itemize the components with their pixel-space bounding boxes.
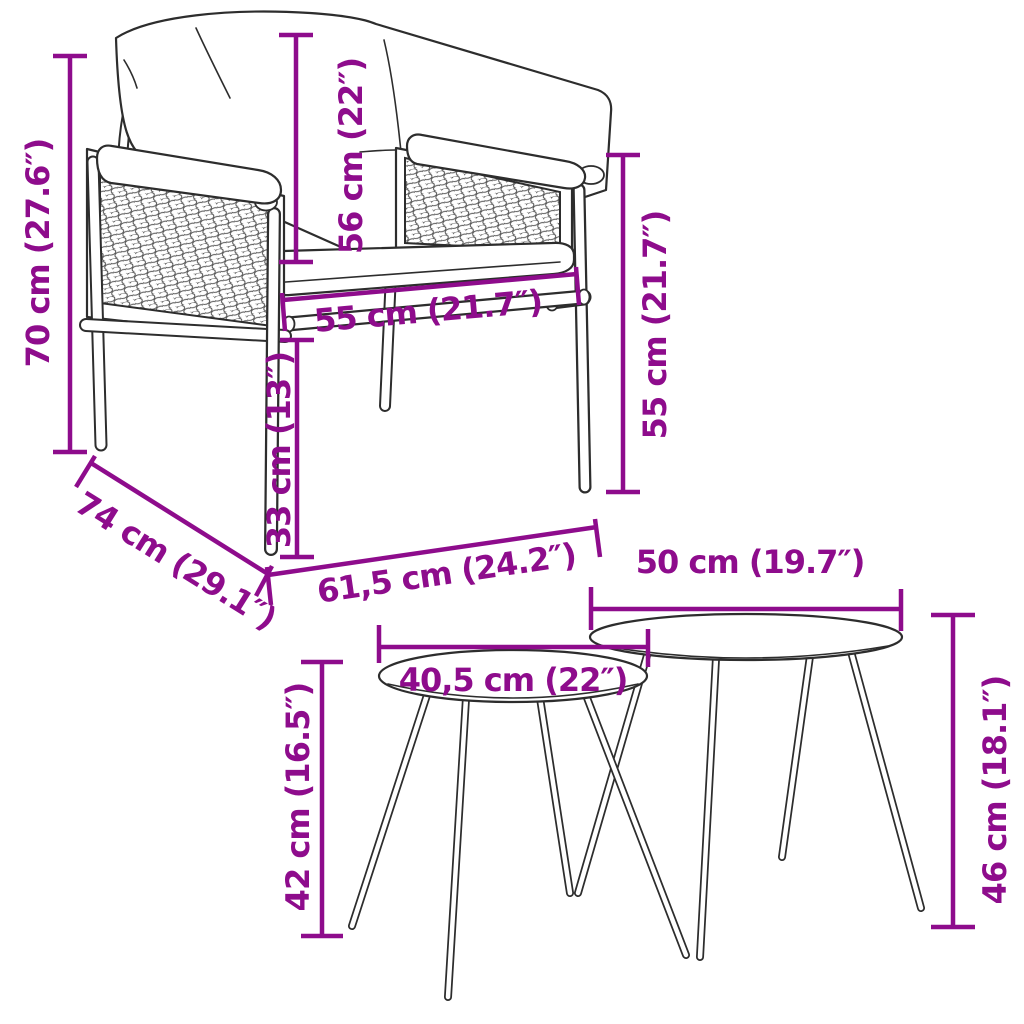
dim-large-table-height-label: 46 cm (18.1″): [976, 676, 1014, 905]
dim-chair-height: 70 cm (27.6″): [19, 56, 87, 452]
dim-chair-width: 61,5 cm (24.2″): [267, 519, 600, 611]
dim-back-cushion-height-label: 56 cm (22″): [332, 58, 370, 254]
chair-front-right-leg: [579, 190, 585, 487]
dim-chair-depth: 74 cm (29.1″): [69, 456, 283, 637]
dim-chair-height-label: 70 cm (27.6″): [19, 139, 57, 368]
dim-large-table-height: 46 cm (18.1″): [931, 615, 1014, 927]
dim-seat-height-label: 33 cm (13″): [260, 352, 298, 548]
chair-rear-left-leg: [93, 162, 101, 445]
dim-small-table-height: 42 cm (16.5″): [279, 662, 343, 936]
dim-small-table-diameter-label: 40,5 cm (22″): [399, 661, 628, 699]
dim-seat-height: 33 cm (13″): [260, 340, 314, 557]
dim-small-table-height-label: 42 cm (16.5″): [279, 683, 317, 912]
large-side-table-top: [590, 614, 902, 660]
dim-armrest-height-label: 55 cm (21.7″): [636, 211, 674, 440]
small-side-table-legs: [352, 690, 686, 997]
dimension-diagram: 70 cm (27.6″) 56 cm (22″) 55 cm (21.7″) …: [0, 0, 1024, 1024]
dim-armrest-height: 55 cm (21.7″): [606, 155, 674, 492]
dim-large-table-diameter-label: 50 cm (19.7″): [636, 543, 865, 581]
dimension-diagram-page: 70 cm (27.6″) 56 cm (22″) 55 cm (21.7″) …: [0, 0, 1024, 1024]
